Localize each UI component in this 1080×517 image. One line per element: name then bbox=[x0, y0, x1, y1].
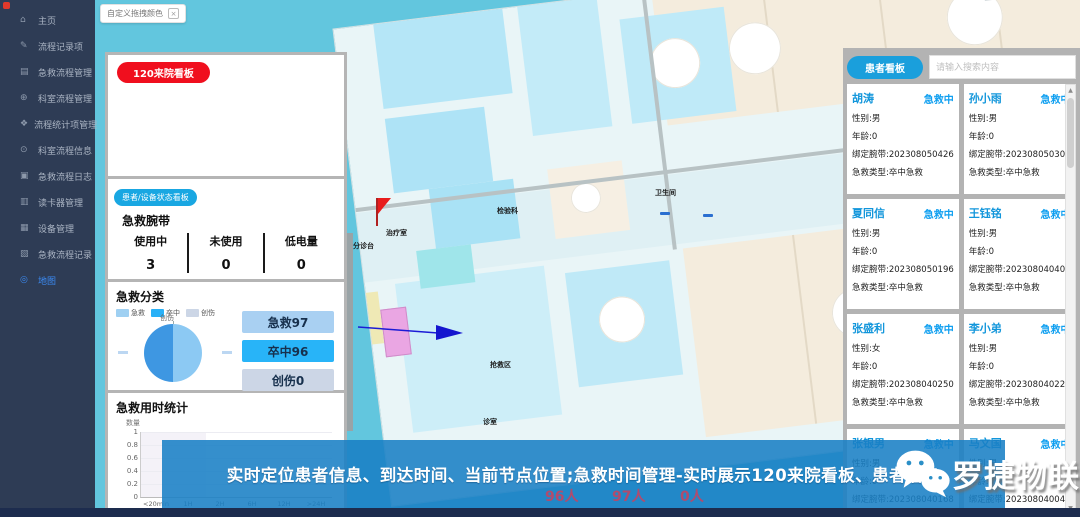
classification-card: 急救分类 急救 卒中 创伤 创伤 bbox=[108, 282, 344, 390]
room-label: 抢救区 bbox=[490, 360, 511, 370]
scrollbar-thumb[interactable] bbox=[1067, 98, 1074, 168]
wristband-col-inuse: 使用中 3 bbox=[114, 233, 187, 273]
room-label: 分诊台 bbox=[353, 241, 374, 251]
y-axis-label: 数量 bbox=[126, 418, 336, 428]
card-reader-icon: ▥ bbox=[20, 197, 32, 207]
patient-card[interactable]: 张盛利急救中 性别:女 年龄:0 绑定腕带:202308040250 急救类型:… bbox=[847, 314, 959, 424]
patient-card[interactable]: 王钰铭急救中 性别:男 年龄:0 绑定腕带:202308040405 急救类型:… bbox=[964, 199, 1076, 309]
filter-button-jijiu[interactable]: 急救97 bbox=[242, 311, 334, 333]
classification-pie-chart[interactable] bbox=[144, 324, 202, 382]
list-icon: ▤ bbox=[20, 67, 32, 77]
duration-chart-title: 急救用时统计 bbox=[116, 399, 336, 416]
legend-swatch-jijiu bbox=[116, 309, 129, 317]
app-window: 卫生间 检验科 治疗室 分诊台 抢救区 诊室 ⌂主页 ✎流程记录项 ▤急救流程管… bbox=[0, 0, 1080, 517]
patient-card[interactable]: 夏同信急救中 性别:男 年龄:0 绑定腕带:202308050196 急救类型:… bbox=[847, 199, 959, 309]
patient-route-arrow bbox=[350, 315, 470, 345]
search-input[interactable] bbox=[929, 55, 1076, 79]
custom-color-tab-label: 自定义拖拽颜色 bbox=[107, 8, 163, 19]
legend-swatch-chuangshang bbox=[186, 309, 199, 317]
wechat-icon bbox=[893, 445, 952, 501]
sidebar-item-card-reader-mgmt[interactable]: ▥读卡器管理 bbox=[0, 189, 95, 215]
bed-marker bbox=[660, 212, 670, 215]
room-label: 检验科 bbox=[497, 206, 518, 216]
scroll-up-icon[interactable]: ▲ bbox=[1066, 85, 1075, 96]
sidebar-item-device-mgmt[interactable]: ▦设备管理 bbox=[0, 215, 95, 241]
filter-button-chuangshang[interactable]: 创伤0 bbox=[242, 369, 334, 391]
stats-icon: ❖ bbox=[20, 119, 28, 129]
stat-count: 97人 bbox=[612, 486, 645, 506]
sidebar-item-home[interactable]: ⌂主页 bbox=[0, 7, 95, 33]
brand-name: 罗捷物联 bbox=[952, 451, 1080, 496]
pie-zero-annotation: 创伤 bbox=[160, 313, 174, 323]
wristband-title: 急救腕带 bbox=[122, 212, 338, 229]
alert-flag-icon bbox=[378, 198, 391, 214]
classification-title: 急救分类 bbox=[116, 288, 336, 305]
device-status-card: 患者/设备状态看板 急救腕带 使用中 3 未使用 0 低电量 0 bbox=[108, 179, 344, 279]
bed-marker bbox=[703, 214, 713, 217]
sidebar-item-emergency-process-mgmt[interactable]: ▤急救流程管理 bbox=[0, 59, 95, 85]
sidebar-item-emergency-records[interactable]: ▧急救流程记录 bbox=[0, 241, 95, 267]
sidebar-item-map[interactable]: ◎地图 bbox=[0, 267, 95, 293]
status-board-button[interactable]: 患者/设备状态看板 bbox=[114, 189, 197, 206]
home-icon: ⌂ bbox=[20, 15, 32, 25]
pie-axis-dash bbox=[222, 351, 232, 354]
plus-circle-icon: ⊕ bbox=[20, 93, 32, 103]
close-icon[interactable]: × bbox=[168, 8, 179, 19]
sidebar-item-dept-process-info[interactable]: ⊙科室流程信息 bbox=[0, 137, 95, 163]
brand-watermark: 罗捷物联 bbox=[893, 437, 1080, 509]
app-logo bbox=[3, 2, 10, 9]
pie-axis-dash bbox=[118, 351, 128, 354]
map-icon: ◎ bbox=[20, 275, 32, 285]
caption-banner: 实时定位患者信息、到达时间、当前节点位置;急救时间管理-实时展示120来院看板、… bbox=[162, 440, 1005, 508]
arrival-board-button[interactable]: 120来院看板 bbox=[117, 62, 210, 83]
sidebar-item-process-stats-mgmt[interactable]: ❖流程统计项管理 bbox=[0, 111, 95, 137]
sidebar-item-process-record[interactable]: ✎流程记录项 bbox=[0, 33, 95, 59]
sidebar-item-dept-process-mgmt[interactable]: ⊕科室流程管理 bbox=[0, 85, 95, 111]
status-badge: 急救中 bbox=[924, 91, 954, 106]
stat-count: 0人 bbox=[680, 486, 704, 506]
pie-legend: 急救 卒中 创伤 bbox=[116, 308, 236, 318]
status-badge: 急救中 bbox=[924, 321, 954, 336]
patient-card[interactable]: 孙小雨急救中 性别:男 年龄:0 绑定腕带:202308050303 急救类型:… bbox=[964, 84, 1076, 194]
wristband-col-unused: 未使用 0 bbox=[187, 233, 262, 273]
room-label: 治疗室 bbox=[386, 228, 407, 238]
sidebar-nav: ⌂主页 ✎流程记录项 ▤急救流程管理 ⊕科室流程管理 ❖流程统计项管理 ⊙科室流… bbox=[0, 0, 95, 517]
arrival-board-card: 120来院看板 bbox=[108, 55, 344, 176]
status-badge: 急救中 bbox=[924, 206, 954, 221]
custom-color-tab[interactable]: 自定义拖拽颜色 × bbox=[100, 4, 186, 23]
caption-text: 实时定位患者信息、到达时间、当前节点位置;急救时间管理-实时展示120来院看板、… bbox=[227, 462, 940, 486]
window-bottom-edge bbox=[0, 508, 1080, 517]
edit-icon: ✎ bbox=[20, 41, 32, 51]
log-icon: ▣ bbox=[20, 171, 32, 181]
patient-card[interactable]: 胡涛急救中 性别:男 年龄:0 绑定腕带:202308050426 急救类型:卒… bbox=[847, 84, 959, 194]
record-icon: ▧ bbox=[20, 249, 32, 259]
info-icon: ⊙ bbox=[20, 145, 32, 155]
stat-count: 96人 bbox=[545, 486, 578, 506]
filter-button-cuzhong[interactable]: 卒中96 bbox=[242, 340, 334, 362]
patient-card[interactable]: 李小弟急救中 性别:男 年龄:0 绑定腕带:202308040223 急救类型:… bbox=[964, 314, 1076, 424]
sidebar-item-emergency-log[interactable]: ▣急救流程日志 bbox=[0, 163, 95, 189]
patient-board-button[interactable]: 患者看板 bbox=[847, 56, 923, 79]
room-label: 诊室 bbox=[483, 417, 497, 427]
device-icon: ▦ bbox=[20, 223, 32, 233]
room-label: 卫生间 bbox=[655, 188, 676, 198]
wristband-col-lowbattery: 低电量 0 bbox=[263, 233, 338, 273]
